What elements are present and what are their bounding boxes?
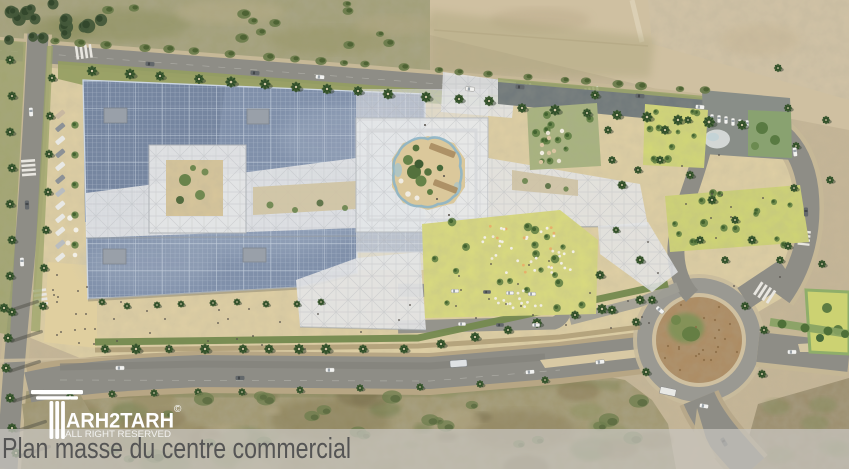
svg-text:©: © <box>174 404 182 415</box>
svg-text:Plan masse du centre commercia: Plan masse du centre commercial <box>2 433 351 465</box>
